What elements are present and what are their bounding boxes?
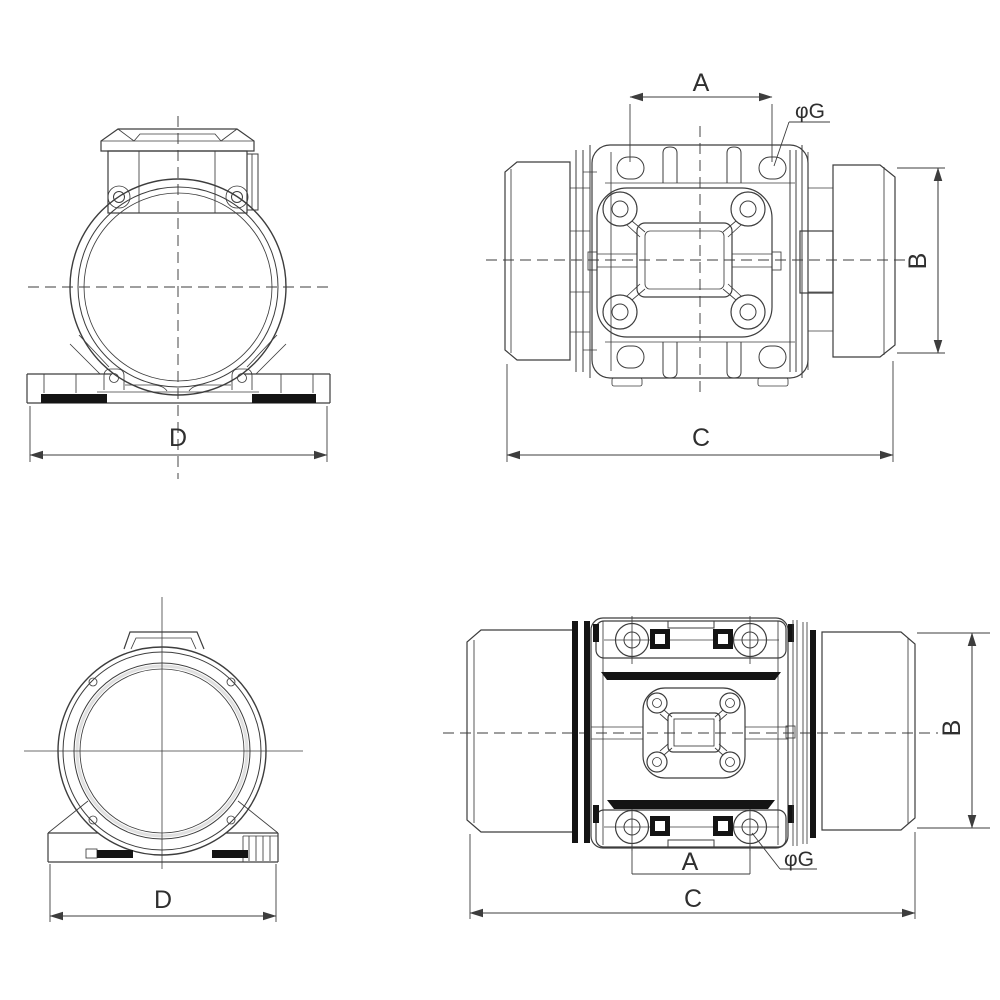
dim-label-phiG-bottom: φG: [784, 848, 814, 871]
dim-label-phiG-top: φG: [795, 100, 825, 123]
rubber-pad-left: [97, 850, 133, 858]
seal-bar-top: [601, 672, 781, 680]
dim-label-C-bottom: C: [684, 885, 702, 913]
technical-drawing: D A φG B C D A φG B C: [0, 0, 1000, 1000]
seal-band-right: [810, 630, 816, 838]
rubber-pad-right: [212, 850, 248, 858]
rubber-pad-left: [41, 394, 107, 403]
dim-label-B-bottom: B: [938, 720, 966, 737]
dim-label-B-top: B: [904, 253, 932, 270]
drawing-background: [0, 0, 1000, 1000]
rubber-pad-right: [252, 394, 316, 403]
dim-label-D-top: D: [169, 424, 187, 452]
dim-label-A-top: A: [693, 69, 710, 97]
dim-label-A-bottom: A: [682, 848, 699, 876]
dim-label-C-top: C: [692, 424, 710, 452]
dim-label-D-bottom: D: [154, 886, 172, 914]
seal-bar-bottom: [607, 800, 775, 809]
